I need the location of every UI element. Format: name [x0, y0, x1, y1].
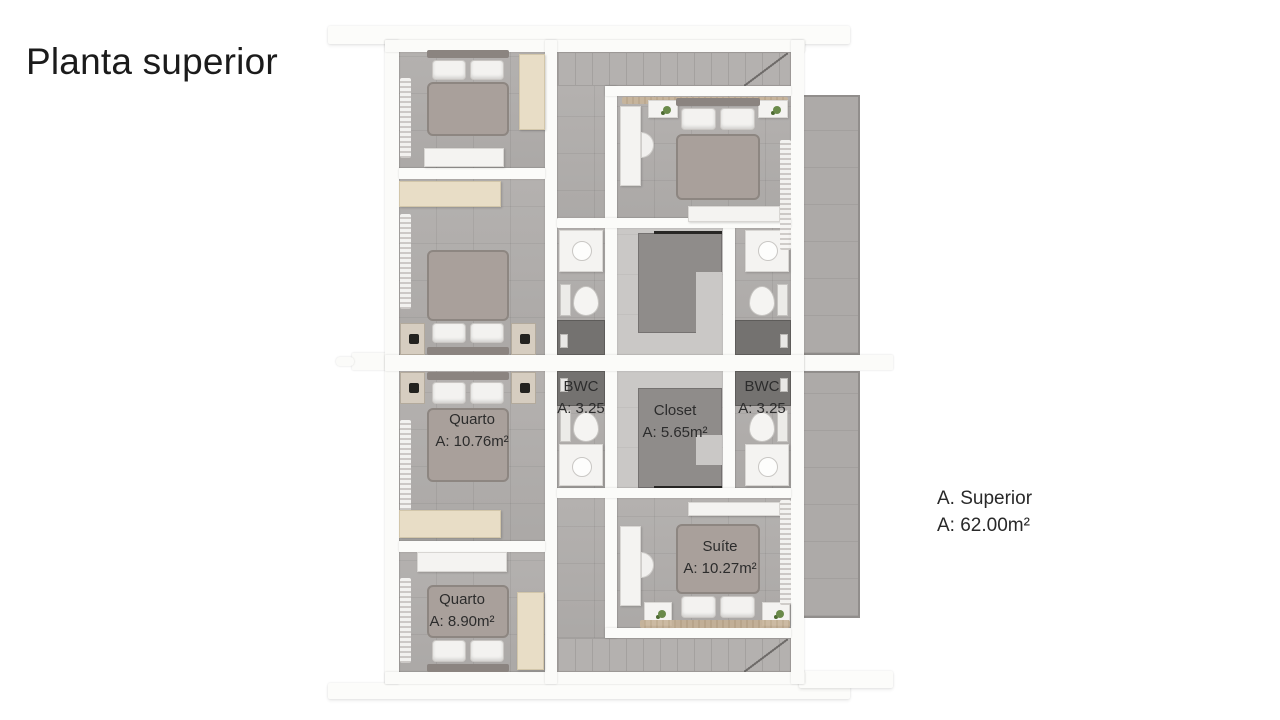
room-name: BWC: [745, 376, 780, 399]
sink: [758, 241, 778, 261]
dresser: [399, 510, 501, 538]
wall-exterior-bottom: [385, 672, 805, 684]
stair-void-notch: [696, 272, 722, 333]
desk: [620, 526, 641, 606]
bed-duvet: [427, 82, 509, 136]
bathroom-counter: [559, 444, 603, 486]
shower: [735, 320, 791, 355]
party-wall-stub-left-tab: [336, 357, 354, 366]
bed-headboard: [427, 50, 509, 58]
bed-headboard: [676, 98, 760, 106]
stair-diagonal-line: [744, 639, 788, 672]
desk: [620, 106, 641, 186]
room-name: Closet: [654, 400, 697, 423]
roof-eave-bottom: [328, 683, 850, 699]
bed-pillow: [470, 640, 504, 662]
bed-top-left-2: [427, 250, 509, 355]
dresser: [688, 206, 780, 222]
stair-void-top: [638, 233, 722, 333]
room-area: A: 10.76m²: [435, 431, 508, 454]
room-label-closet: Closet A: 5.65m²: [627, 396, 723, 448]
floor-stair-landing-top: [557, 86, 605, 228]
dresser: [399, 181, 501, 207]
roof-eave-right: [799, 671, 893, 688]
lamp: [520, 334, 530, 344]
stairs-bottom: [557, 638, 791, 672]
bed-top-left-1: [427, 50, 509, 136]
nightstand: [758, 100, 788, 118]
room-area: A: 8.90m²: [429, 611, 494, 634]
party-wall-center: [385, 355, 804, 371]
floor-plan-canvas: Planta superior: [0, 0, 1280, 720]
bed-pillow: [720, 596, 755, 618]
total-area-value: A: 62.00m²: [937, 512, 1032, 539]
wall-between-bedrooms-bottom-left: [399, 541, 545, 552]
total-area-annotation: A. Superior A: 62.00m²: [937, 485, 1032, 539]
bed-suite-top: [676, 98, 760, 200]
bed-headboard: [427, 664, 509, 672]
total-area-title: A. Superior: [937, 485, 1032, 512]
bed-headboard: [427, 372, 509, 380]
dresser: [417, 552, 507, 572]
bed-pillow: [432, 60, 466, 80]
nightstand: [511, 323, 536, 355]
room-area: A: 3.25: [738, 398, 786, 421]
floor-stair-landing-bottom: [557, 498, 605, 638]
plant: [776, 610, 784, 618]
bed-pillow: [470, 382, 504, 404]
sink: [572, 241, 592, 261]
bed-headboard: [427, 347, 509, 355]
plant: [663, 106, 671, 114]
wall-bathrooms-bottom: [557, 488, 791, 498]
toilet: [573, 286, 599, 316]
bathroom-counter: [559, 230, 603, 272]
wall-suite-top-horizontal: [605, 86, 791, 96]
bed-pillow: [432, 640, 466, 662]
bed-duvet: [676, 134, 760, 200]
room-area: A: 5.65m²: [642, 422, 707, 445]
dresser: [688, 502, 780, 516]
room-name: Quarto: [439, 589, 485, 612]
bed-pillow: [432, 382, 466, 404]
balcony-top: [802, 95, 860, 355]
stair-diagonal-line: [744, 53, 788, 86]
sink: [758, 457, 778, 477]
stairs-top: [557, 52, 791, 86]
toilet-tank: [560, 284, 571, 316]
sink: [572, 457, 592, 477]
room-area: A: 10.27m²: [683, 558, 756, 581]
toilet-tank: [777, 284, 788, 316]
bed-pillow: [720, 108, 755, 130]
closet-curtain: [400, 78, 411, 158]
wardrobe: [519, 54, 545, 130]
room-label-quarto-upper: Quarto A: 10.76m²: [404, 406, 540, 456]
bathroom-counter: [745, 444, 789, 486]
wall-closet-right-top: [723, 228, 735, 355]
lamp: [409, 334, 419, 344]
plant: [658, 610, 666, 618]
plant: [773, 106, 781, 114]
room-label-quarto-lower: Quarto A: 8.90m²: [394, 586, 530, 636]
balcony-bottom: [802, 371, 860, 618]
bed-pillow: [681, 108, 716, 130]
bed-pillow: [470, 323, 504, 343]
lamp: [409, 383, 419, 393]
shower-shelf: [780, 334, 788, 348]
nightstand: [400, 323, 425, 355]
room-name: Suíte: [702, 536, 737, 559]
toilet: [749, 286, 775, 316]
room-name: BWC: [564, 376, 599, 399]
wall-between-bedrooms-top-left: [399, 168, 545, 179]
shower: [557, 320, 605, 355]
closet-curtain: [400, 214, 411, 309]
bed-pillow: [470, 60, 504, 80]
room-name: Quarto: [449, 409, 495, 432]
party-wall-stub-right: [799, 355, 893, 370]
page-title: Planta superior: [26, 41, 278, 83]
room-label-bwc-right: BWC A: 3.25: [726, 377, 798, 419]
shower-shelf: [560, 334, 568, 348]
bed-pillow: [432, 323, 466, 343]
nightstand: [648, 100, 678, 118]
window-curtain: [780, 140, 791, 250]
bed-duvet: [427, 250, 509, 321]
wall-suite-bottom-horizontal: [605, 628, 791, 638]
room-area: A: 3.25: [557, 398, 605, 421]
room-label-bwc-left: BWC A: 3.25: [545, 377, 617, 419]
nightstand: [400, 372, 425, 404]
dresser: [424, 148, 504, 167]
lamp: [520, 383, 530, 393]
room-label-suite: Suíte A: 10.27m²: [648, 532, 792, 584]
nightstand: [511, 372, 536, 404]
rug: [640, 620, 790, 628]
stair-railing-top: [654, 231, 722, 234]
bed-pillow: [681, 596, 716, 618]
